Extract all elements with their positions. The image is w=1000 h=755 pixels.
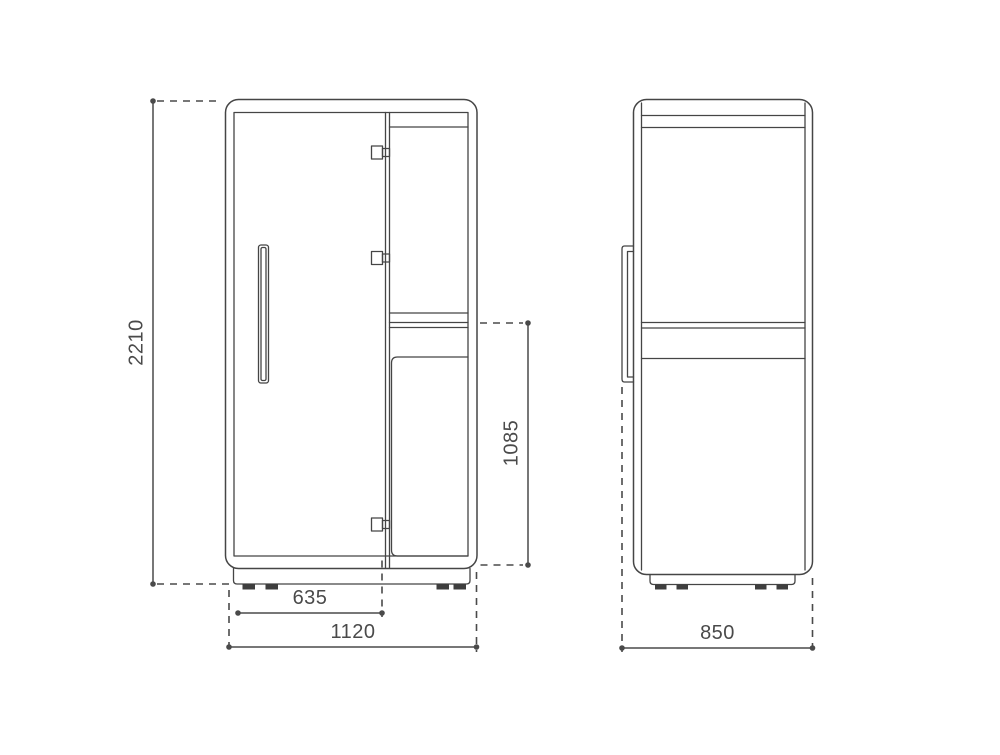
- dimension-worktop-height: 1085: [480, 320, 531, 568]
- hinge-bottom: [372, 518, 390, 531]
- front-feet: [243, 584, 467, 590]
- door-handle: [259, 245, 269, 383]
- side-feet: [655, 585, 788, 590]
- side-plinth: [650, 575, 795, 585]
- dimension-overall-height: 2210: [125, 98, 229, 587]
- dimension-label-door-width: 635: [293, 587, 328, 609]
- side-top-band: [642, 116, 806, 128]
- hinge-middle: [372, 252, 390, 265]
- dimension-label-overall-height: 2210: [125, 319, 147, 366]
- dimension-label-worktop-height: 1085: [500, 420, 522, 467]
- front-side-column: [390, 127, 469, 556]
- front-door-divider: [386, 113, 390, 569]
- front-plinth: [234, 569, 471, 585]
- side-worktop-band: [642, 323, 806, 359]
- side-view: [622, 100, 813, 590]
- front-view: [226, 100, 478, 590]
- hinge-top: [372, 146, 390, 159]
- side-body-outline: [634, 100, 813, 575]
- dimension-label-overall-width: 1120: [330, 621, 375, 643]
- dimension-label-overall-depth: 850: [700, 622, 735, 644]
- front-body-outline: [226, 100, 478, 569]
- technical-drawing-page: 2210 1085 635: [0, 0, 1000, 755]
- drawing-svg: 2210 1085 635: [0, 0, 1000, 755]
- side-door-handle: [622, 246, 634, 382]
- dimension-overall-depth: 850: [619, 387, 815, 652]
- front-lower-panel: [392, 357, 469, 556]
